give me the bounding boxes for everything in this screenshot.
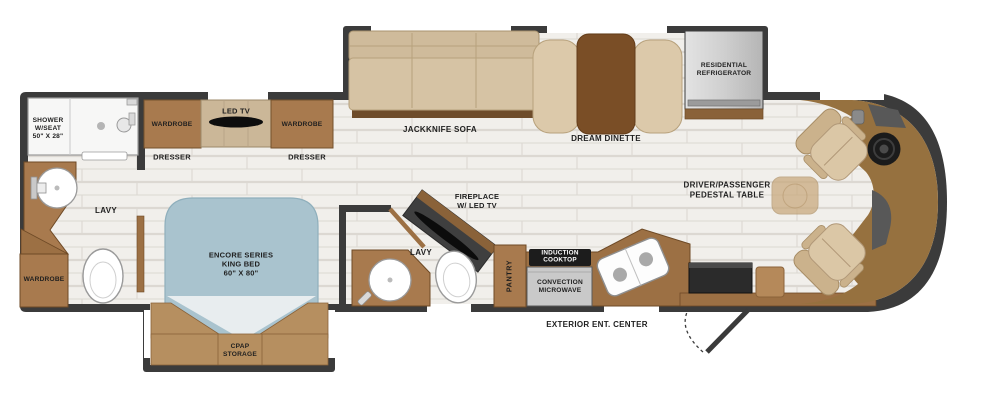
cpap-storage-drawers (151, 334, 328, 365)
bedroom-wardrobe-right (271, 100, 333, 148)
midbath-window (427, 304, 471, 312)
dream-dinette (533, 34, 682, 134)
induction-cooktop (529, 249, 591, 266)
floorplan-drawing (0, 0, 1000, 400)
rear-sink-drain-icon (55, 186, 60, 191)
shower-drain-icon (97, 122, 105, 130)
rear-toilet (83, 249, 123, 303)
entry-door-swing-arc (685, 310, 703, 352)
bedroom-side-cabinet (137, 216, 144, 292)
pantry-cabinet (494, 245, 526, 307)
bed-slideout-window-right (328, 310, 335, 358)
gear-shift-icon (852, 110, 864, 124)
shower-threshold (82, 152, 127, 160)
rv-floorplan: SHOWER W/SEAT 50" X 28" WARDROBE LED TV … (0, 0, 1000, 400)
living-tv-top (689, 263, 752, 268)
entry-cabinet (756, 267, 784, 297)
bedroom-wardrobe-left (144, 100, 201, 148)
steering-wheel-icon (868, 133, 901, 166)
pedestal-table (772, 177, 818, 214)
bedroom-led-tv-icon (209, 117, 263, 128)
dinette-table (577, 34, 635, 134)
rear-wardrobe (20, 254, 68, 307)
midbath-sink-drain-icon (388, 278, 393, 283)
entry-door (707, 310, 748, 352)
bedroom-window (208, 92, 268, 100)
midbath-wall-vertical (339, 205, 346, 308)
convection-microwave (527, 267, 592, 306)
bed-slideout-window-left (144, 310, 151, 358)
front-window (820, 92, 884, 100)
jackknife-sofa (349, 31, 539, 118)
midbath-wall-top (339, 205, 391, 212)
dinette-window (547, 25, 667, 33)
residential-refrigerator (685, 31, 763, 119)
